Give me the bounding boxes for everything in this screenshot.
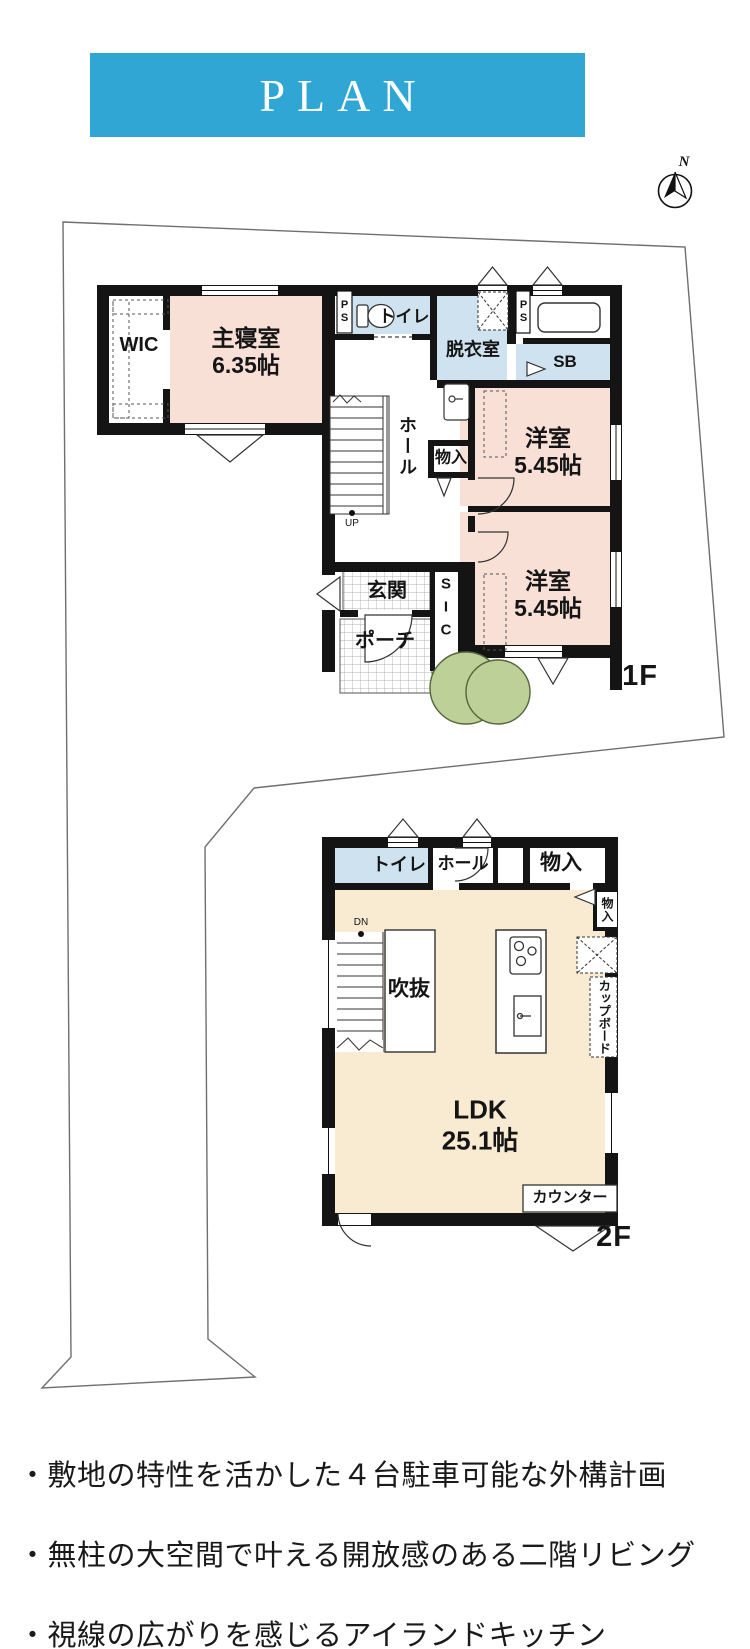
washer-box-icon-1f — [478, 292, 508, 330]
washbasin-icon-1f — [444, 384, 469, 420]
label-porch: ポーチ — [355, 630, 415, 654]
floorplan-page: PLAN — [0, 0, 750, 1649]
compass-north-label: N — [679, 154, 690, 172]
label-storage-2f-top: 物入 — [540, 852, 582, 877]
note-kitchen: ・視線の広がりを感じるアイランドキッチン — [18, 1612, 607, 1649]
label-storage-1f: 物入 — [435, 450, 467, 469]
label-floor-1f: 1F — [622, 659, 658, 693]
label-up: UP — [345, 518, 359, 530]
label-sb: SB — [553, 352, 577, 372]
label-ldk: LDK 25.1帖 — [442, 1094, 519, 1155]
compass-icon — [659, 172, 692, 208]
label-west-room-1: 洋室 5.45帖 — [514, 425, 582, 479]
label-counter: カウンター — [532, 1189, 607, 1207]
label-toilet-1f: トイレ — [379, 307, 430, 327]
label-hall-2f: ホール — [438, 854, 489, 874]
label-wic: WIC — [120, 334, 159, 358]
label-sic: SIC — [439, 576, 454, 645]
label-toilet-2f: トイレ — [372, 854, 426, 875]
floorplan-graphic — [0, 0, 750, 1649]
label-dn: DN — [354, 917, 368, 929]
stairs-1f — [330, 395, 389, 516]
bathtub-icon — [538, 303, 600, 332]
label-hall-1f: ホール — [398, 416, 416, 479]
stairs-2f — [335, 931, 387, 1052]
label-entrance: 玄関 — [367, 580, 407, 604]
label-storage-2f-side: 物入 — [601, 897, 613, 923]
label-dressing-room: 脱衣室 — [446, 339, 500, 360]
note-living: ・無柱の大空間で叶える開放感のある二階リビング — [18, 1532, 696, 1574]
label-west-room-2: 洋室 5.45帖 — [514, 568, 582, 622]
label-master-bedroom: 主寝室 6.35帖 — [212, 325, 281, 379]
floor1-plan — [97, 267, 622, 724]
label-floor-2f: 2F — [596, 1220, 632, 1254]
kitchen-island-icon — [496, 930, 546, 1053]
floor2-plan — [322, 819, 618, 1251]
label-void: 吹抜 — [388, 978, 430, 1003]
note-parking: ・敷地の特性を活かした４台駐車可能な外構計画 — [18, 1452, 667, 1494]
label-cupboard: カップボード — [597, 980, 610, 1055]
label-ps-right: PS — [518, 299, 529, 325]
tree-icons — [430, 652, 530, 724]
label-ps-left: PS — [339, 299, 350, 325]
